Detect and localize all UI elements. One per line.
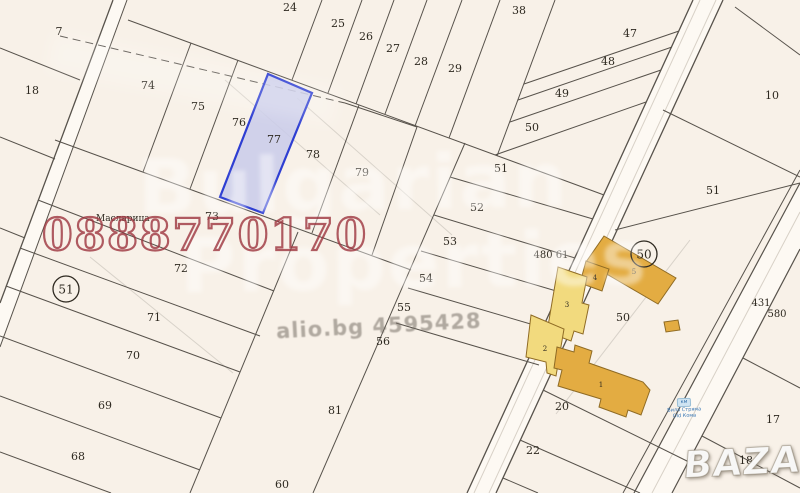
circled-parcel-label: 50	[636, 248, 651, 262]
parcel-label: 29	[448, 62, 462, 75]
parcel-label: 69	[98, 399, 112, 412]
parcel-label: 53	[443, 235, 457, 248]
parcel-label: 580	[767, 309, 786, 320]
parcel-label: 48	[601, 55, 615, 68]
parcel-label: 51	[706, 184, 720, 197]
parcel-label: 68	[71, 450, 85, 463]
place-name-label: Масларица	[96, 214, 150, 224]
parcel-label: 10	[765, 89, 779, 102]
cadastral-map-viewport[interactable]: 7918747576777879737271706968242526272829…	[0, 0, 800, 493]
parcel-label: 47	[623, 27, 637, 40]
parcel-label: 9	[0, 166, 1, 179]
parcel-label: 24	[283, 1, 297, 14]
parcel-label: 50	[616, 311, 630, 324]
place-name: Масларица	[96, 214, 150, 224]
cadastral-map-canvas[interactable]: 7918747576777879737271706968242526272829…	[0, 0, 800, 493]
parcel-label: 81	[328, 404, 342, 417]
parcel-label: 38	[512, 4, 526, 17]
parcel-label: 480 61	[534, 250, 569, 261]
parcel-label: 7	[56, 25, 63, 38]
building-label: 5	[632, 268, 636, 276]
parcel-label: 72	[174, 262, 188, 275]
parcel-label: 50	[525, 121, 539, 134]
building-label: 4	[593, 274, 598, 282]
parcel-label: 54	[419, 272, 433, 285]
parcel-label: 22	[526, 444, 540, 457]
circled-parcel-label: 51	[58, 283, 73, 297]
parcel-label: 71	[147, 311, 161, 324]
parcel-label: 18	[25, 84, 39, 97]
parcel-label: 73	[205, 210, 219, 223]
parcel-label: 28	[414, 55, 428, 68]
parcel-label: 25	[331, 17, 345, 30]
parcel-label: 49	[555, 87, 569, 100]
parcel-label: 60	[275, 478, 289, 491]
parcel-label: 56	[376, 335, 390, 348]
building-label: 1	[599, 381, 603, 389]
parcel-label: 18	[739, 454, 753, 467]
parcel-label: 78	[306, 148, 320, 161]
parcel-label: 70	[126, 349, 140, 362]
parcel-label: 76	[232, 116, 246, 129]
building-label: 2	[543, 345, 547, 353]
parcel-label: 17	[766, 413, 780, 426]
parcel-label: 55	[397, 301, 411, 314]
parcel-label: 26	[359, 30, 373, 43]
parcel-label: 79	[355, 166, 369, 179]
parcel-label: 52	[470, 201, 484, 214]
parcel-label: 431	[751, 298, 770, 309]
building-label: 3	[565, 301, 569, 309]
parcel-label: 74	[141, 79, 155, 92]
parcel-label: 27	[386, 42, 400, 55]
parcel-label: 77	[267, 133, 281, 146]
parcel-label: 20	[555, 400, 569, 413]
parcel-label: 75	[191, 100, 205, 113]
parcel-label: 51	[494, 162, 508, 175]
